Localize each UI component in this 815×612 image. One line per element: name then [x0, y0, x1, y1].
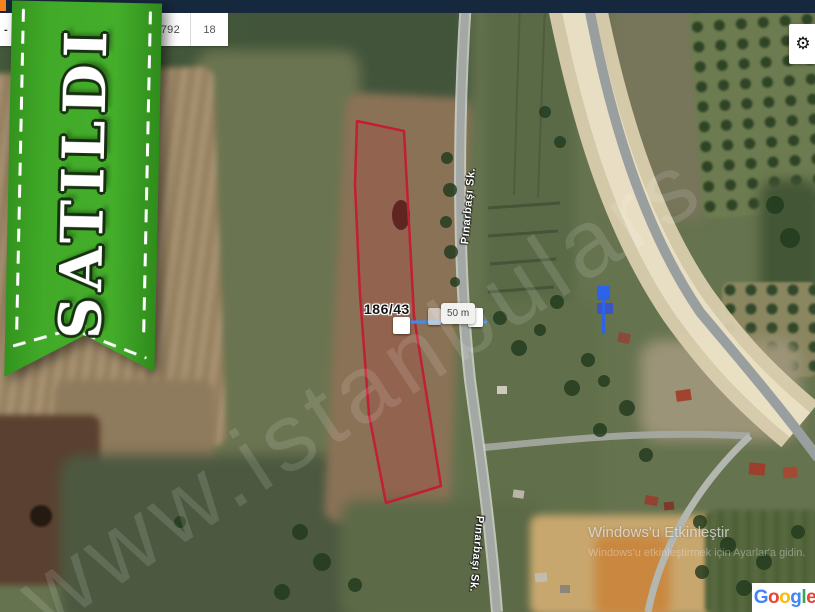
map-viewport[interactable]: 186/43 50 m Pınarbaşı Sk. Pınarbaşı Sk. … — [0, 0, 815, 612]
highway-clearing — [573, 0, 800, 425]
distance-chip: 50 m — [441, 303, 475, 324]
gear-icon: ⚙ — [795, 34, 810, 54]
google-letter: e — [806, 587, 815, 609]
google-letter: G — [754, 587, 768, 609]
ribbon-body: SATILDI — [4, 0, 162, 395]
accent-corner-block — [0, 0, 6, 11]
google-attribution[interactable]: G o o g l e — [752, 583, 815, 612]
parcel-number-label: 186/43 — [364, 301, 410, 317]
status-ribbon: SATILDI — [4, 0, 162, 395]
google-letter: g — [790, 587, 801, 609]
ribbon-stitch-right — [142, 11, 152, 341]
ribbon-stitch-left — [15, 9, 25, 339]
coordinate-fragment: - — [4, 24, 8, 36]
google-letter: o — [779, 587, 790, 609]
measure-start-marker[interactable] — [393, 317, 410, 334]
zoom-level-value: 18 — [190, 13, 228, 46]
measure-mid-marker[interactable] — [428, 308, 441, 325]
blue-flag-pole — [602, 298, 605, 334]
ribbon-label: SATILDI — [46, 24, 121, 340]
connector-road — [480, 434, 750, 448]
field-boundaries — [514, 2, 545, 198]
google-letter: o — [768, 587, 779, 609]
settings-button[interactable]: ⚙ — [789, 24, 815, 64]
hedgerows — [488, 203, 560, 292]
